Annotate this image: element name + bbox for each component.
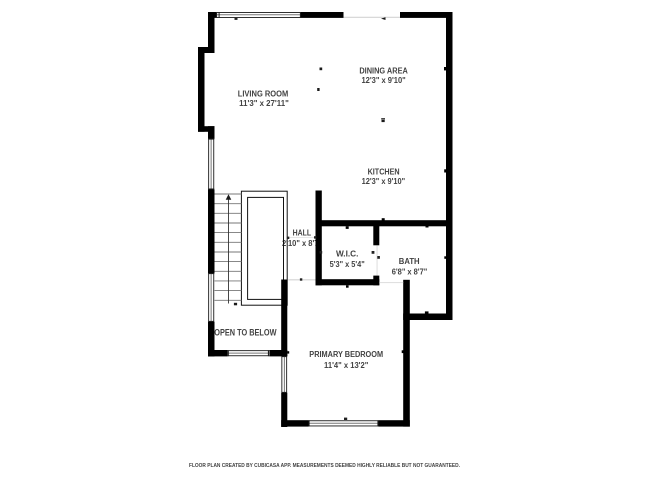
svg-text:HALL: HALL bbox=[293, 227, 312, 237]
svg-text:6'8" x 8'7": 6'8" x 8'7" bbox=[392, 266, 428, 276]
svg-text:12'3" x 9'10": 12'3" x 9'10" bbox=[362, 176, 406, 186]
svg-text:W.I.C.: W.I.C. bbox=[336, 248, 359, 258]
svg-text:DINING AREA: DINING AREA bbox=[359, 65, 408, 75]
svg-text:PRIMARY BEDROOM: PRIMARY BEDROOM bbox=[309, 349, 383, 359]
svg-text:12'3" x 9'10": 12'3" x 9'10" bbox=[361, 75, 405, 85]
svg-text:5'3" x 5'4": 5'3" x 5'4" bbox=[330, 259, 365, 269]
svg-text:FLOOR PLAN CREATED BY CUBICASA: FLOOR PLAN CREATED BY CUBICASA APP. MEAS… bbox=[189, 463, 460, 469]
svg-text:11'3" x 27'11": 11'3" x 27'11" bbox=[239, 98, 289, 108]
svg-text:11'4" x 13'2": 11'4" x 13'2" bbox=[324, 360, 368, 370]
svg-text:KITCHEN: KITCHEN bbox=[368, 167, 400, 177]
svg-text:BATH: BATH bbox=[399, 256, 420, 266]
svg-text:OPEN TO BELOW: OPEN TO BELOW bbox=[214, 328, 277, 339]
